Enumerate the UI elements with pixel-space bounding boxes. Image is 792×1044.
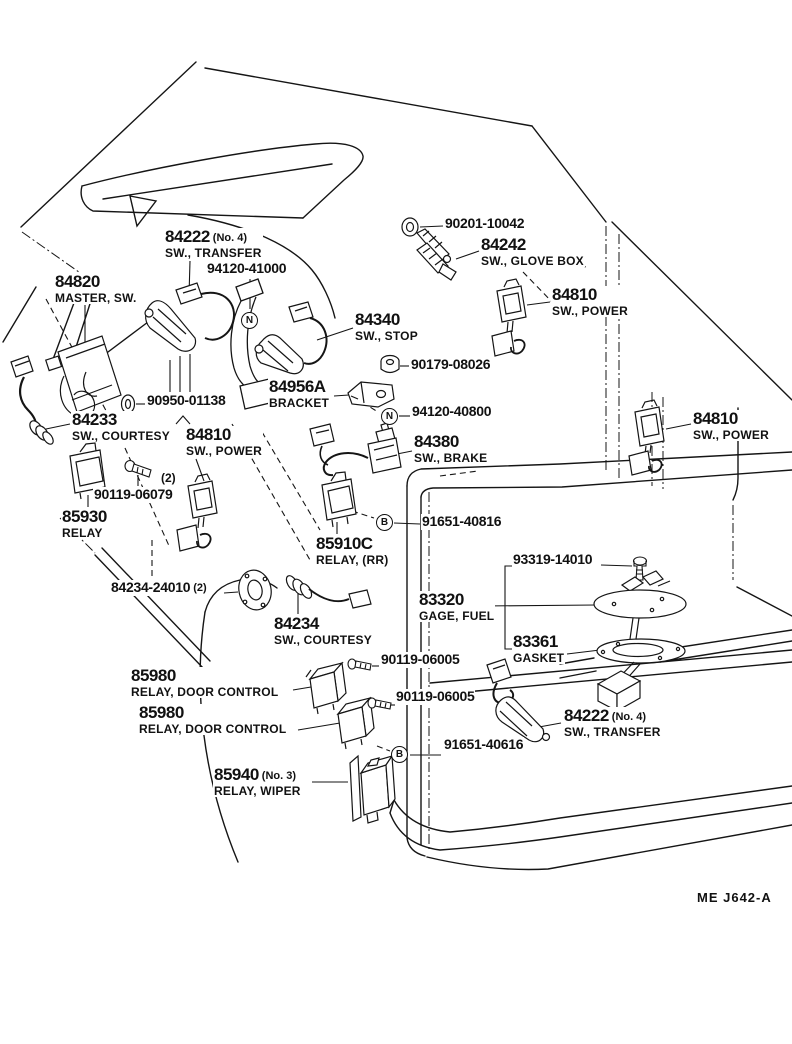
part-number: 84222 — [165, 227, 210, 246]
callout-84234-courtesy: 84234 SW., COURTESY — [273, 615, 373, 646]
callout-84820-master-switch: 84820 MASTER, SW. — [54, 273, 138, 304]
callout-84340-stop: 84340 SW., STOP — [354, 311, 419, 342]
part-number: 90119-06005 — [396, 688, 474, 704]
callout-84810-power-right: 84810 SW., POWER — [692, 410, 770, 441]
callout-93319-14010: 93319-14010 — [512, 552, 593, 568]
part-number: 85940 — [214, 765, 259, 784]
callout-85980-door-control-upper: 85980 RELAY, DOOR CONTROL — [130, 667, 279, 698]
marker-letter: N — [386, 411, 393, 422]
part-desc: RELAY, DOOR CONTROL — [139, 723, 286, 735]
callout-91651-40616: 91651-40616 — [443, 737, 524, 753]
callout-90119-06005-lower: 90119-06005 — [395, 689, 475, 705]
part-desc: RELAY, WIPER — [214, 785, 301, 797]
part-number: 90950-01138 — [147, 392, 225, 408]
relay-85910c — [322, 472, 356, 527]
gasket-83361 — [597, 639, 685, 663]
part-desc: SW., POWER — [693, 429, 769, 441]
screw-90119-06079 — [125, 461, 151, 478]
transfer-switch-84222-top — [145, 283, 234, 351]
part-number: 85910C — [316, 534, 373, 553]
power-switch-84810-top — [492, 279, 526, 356]
part-desc: SW., COURTESY — [72, 430, 170, 442]
callout-85930-relay: 85930 RELAY — [61, 508, 108, 539]
callout-84810-power-mid: 84810 SW., POWER — [185, 426, 263, 457]
marker-circle-n-top: N — [241, 312, 258, 329]
part-number: 94120-40800 — [412, 403, 491, 419]
part-note: (2) — [193, 582, 206, 594]
marker-letter: N — [246, 315, 253, 326]
callout-94120-41000: 94120-41000 — [206, 261, 287, 277]
part-number: 85980 — [131, 666, 176, 685]
figure-code: ME J642-A — [697, 890, 772, 905]
relay-85940 — [350, 756, 395, 823]
part-number: 84380 — [414, 432, 459, 451]
callout-84222-transfer-bottom: 84222(No. 4) SW., TRANSFER — [563, 707, 662, 738]
callout-84380-brake: 84380 SW., BRAKE — [413, 433, 488, 464]
callout-90119-06005-upper: 90119-06005 — [380, 652, 460, 668]
callout-90179-08026: 90179-08026 — [410, 357, 491, 373]
callout-84810-power-top: 84810 SW., POWER — [551, 286, 629, 317]
callout-85980-door-control-lower: 85980 RELAY, DOOR CONTROL — [138, 704, 287, 735]
fuel-gauge-float-arm — [598, 662, 640, 711]
part-number: 84820 — [55, 272, 100, 291]
part-number: 91651-40616 — [444, 736, 523, 752]
part-desc: SW., POWER — [552, 305, 628, 317]
part-number: 83361 — [513, 632, 558, 651]
callout-84956a-bracket: 84956A BRACKET — [268, 378, 330, 409]
part-number: 90179-08026 — [411, 356, 490, 372]
part-desc: SW., BRAKE — [414, 452, 487, 464]
marker-circle-b-mid: B — [376, 514, 393, 531]
exploded-parts-drawing — [0, 0, 792, 1044]
part-desc: GASKET — [513, 652, 564, 664]
marker-letter: B — [381, 517, 388, 528]
part-number: 94120-41000 — [207, 260, 286, 276]
callout-84233-courtesy: 84233 SW., COURTESY — [71, 411, 171, 442]
callout-94120-40800: 94120-40800 — [411, 404, 492, 420]
power-switch-84810-right — [629, 400, 664, 475]
part-number: 85930 — [62, 507, 107, 526]
screw-90119-06005-lower — [368, 698, 391, 709]
part-number: 84810 — [186, 425, 231, 444]
callout-85940-wiper-relay: 85940(No. 3) RELAY, WIPER — [213, 766, 302, 797]
marker-circle-b-bottom: B — [391, 746, 408, 763]
part-desc: SW., GLOVE BOX — [481, 255, 584, 267]
marker-letter: B — [396, 749, 403, 760]
part-desc: SW., STOP — [355, 330, 418, 342]
transfer-switch-84222-bottom — [487, 659, 550, 742]
part-desc: MASTER, SW. — [55, 292, 137, 304]
part-desc: BRACKET — [269, 397, 329, 409]
part-note: (No. 4) — [213, 232, 247, 244]
relay-85980-upper — [306, 663, 346, 714]
stop-switch-84340 — [255, 302, 326, 374]
part-number: 85980 — [139, 703, 184, 722]
courtesy-switch-84234 — [284, 574, 371, 608]
screw-90119-06005-upper — [348, 659, 371, 670]
callout-91651-40816: 91651-40816 — [421, 514, 502, 530]
part-number: 84956A — [269, 377, 326, 396]
brake-switch-84380 — [310, 423, 401, 475]
nut-90179-08026 — [381, 356, 399, 373]
part-desc: RELAY, (RR) — [316, 554, 388, 566]
power-switch-84810-mid — [177, 474, 217, 551]
callout-83320-fuel-gage: 83320 GAGE, FUEL — [418, 591, 495, 622]
part-note: (No. 4) — [612, 711, 646, 723]
part-desc: SW., TRANSFER — [564, 726, 661, 738]
callout-90119-06079: 90119-06079 — [93, 487, 173, 503]
callout-84242-glovebox: 84242 SW., GLOVE BOX — [480, 236, 585, 267]
part-number: 84810 — [693, 409, 738, 428]
part-number: 84234 — [274, 614, 319, 633]
part-number: 84234-24010 — [111, 579, 190, 595]
bracket-84956a — [348, 382, 394, 407]
callout-90201-10042: 90201-10042 — [444, 216, 525, 232]
parts-diagram-page: N N B B 84222(No. 4) SW., TRANSFER 94120… — [0, 0, 792, 1044]
part-number: 84340 — [355, 310, 400, 329]
part-number: 90119-06079 — [94, 486, 172, 502]
part-note: (No. 3) — [262, 770, 296, 782]
part-number: 84222 — [564, 706, 609, 725]
callout-90950-01138: 90950-01138 — [146, 393, 226, 409]
part-number: 93319-14010 — [513, 551, 592, 567]
part-number: 84810 — [552, 285, 597, 304]
bezel-84234-24010 — [235, 567, 275, 613]
marker-circle-n-mid: N — [381, 408, 398, 425]
callout-85910c-relay-rr: 85910C RELAY, (RR) — [315, 535, 389, 566]
part-desc: SW., POWER — [186, 445, 262, 457]
part-number: 90201-10042 — [445, 215, 524, 231]
callout-qty-2: (2) — [160, 471, 177, 487]
part-number: 84233 — [72, 410, 117, 429]
callout-84222-transfer-top: 84222(No. 4) SW., TRANSFER — [164, 228, 263, 259]
fuel-gauge-83320 — [594, 571, 686, 639]
part-number: 84242 — [481, 235, 526, 254]
part-number: 90119-06005 — [381, 651, 459, 667]
callout-84234-24010: 84234-24010(2) — [110, 580, 208, 596]
callout-83361-gasket: 83361 GASKET — [512, 633, 565, 664]
part-desc: SW., TRANSFER — [165, 247, 262, 259]
qty-note: (2) — [161, 471, 176, 485]
part-number: 91651-40816 — [422, 513, 501, 529]
part-desc: SW., COURTESY — [274, 634, 372, 646]
part-desc: GAGE, FUEL — [419, 610, 494, 622]
part-number: 83320 — [419, 590, 464, 609]
part-desc: RELAY — [62, 527, 107, 539]
part-desc: RELAY, DOOR CONTROL — [131, 686, 278, 698]
